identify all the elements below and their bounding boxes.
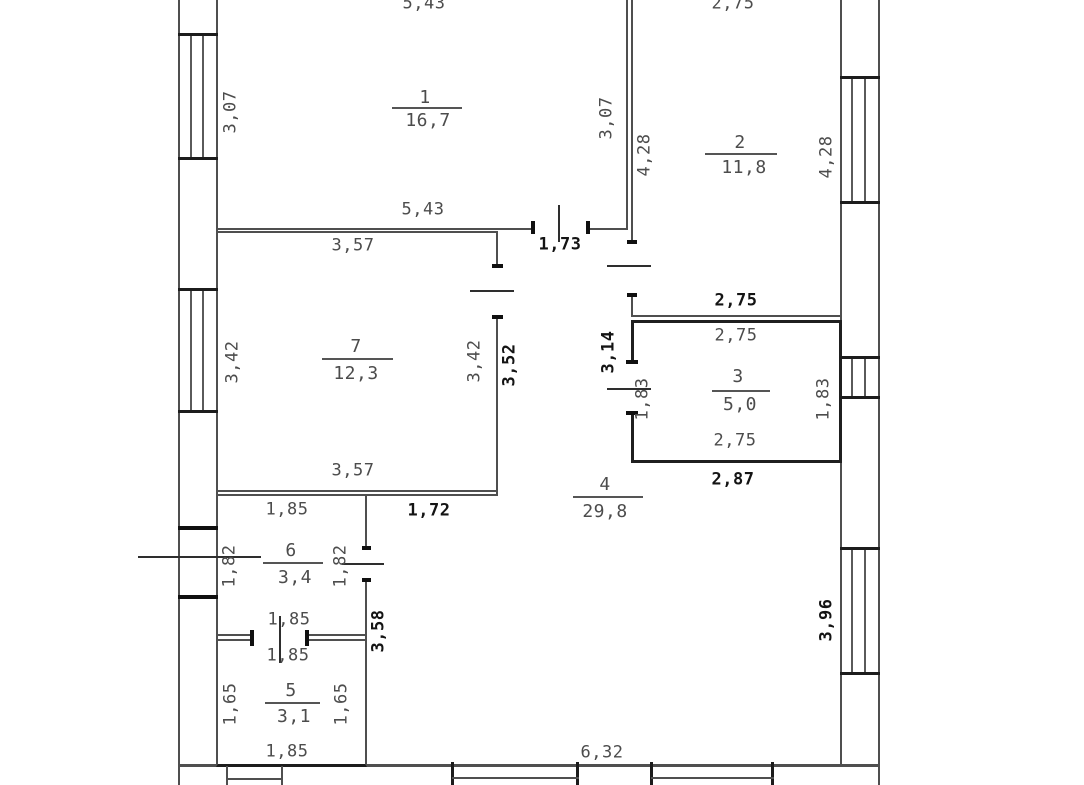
window-left-upper-glass-1 (190, 36, 192, 157)
room-4-number: 4 (599, 476, 610, 494)
window-right-lower-cap-bottom (840, 672, 880, 675)
room-1-number: 1 (419, 89, 430, 107)
window-right-upper-glass-2 (864, 79, 866, 201)
dim-hall-left-lower: 3,58 (371, 610, 388, 653)
room-1-divider (392, 107, 462, 109)
wall-right-outer (878, 0, 880, 785)
room-3-divider (712, 390, 770, 392)
dim-room2-top: 2,75 (712, 0, 755, 13)
dim-room3-left: 1,83 (635, 378, 652, 421)
dim-room7-right: 3,42 (467, 340, 484, 383)
room-6-divider (263, 562, 323, 564)
dim-room5-top: 1,85 (267, 648, 310, 665)
dim-hall-below-room3: 2,87 (712, 472, 755, 489)
wall-left-outer (178, 0, 180, 785)
room-4-area: 29,8 (582, 503, 627, 521)
room-2-number: 2 (734, 134, 745, 152)
window-bottom-1-line (452, 777, 579, 779)
door-room7-jamb-bottom (492, 315, 503, 319)
window-right-lower-glass-2 (864, 550, 866, 672)
dim-room1-right: 3,07 (599, 97, 616, 140)
dim-room1-bottom: 5,43 (402, 202, 445, 219)
window-right-upper-cap-bottom (840, 201, 880, 204)
door-room7-opening (493, 267, 501, 318)
dim-hall-bottom: 6,32 (581, 745, 624, 762)
room-5-number: 5 (285, 682, 296, 700)
dim-room1-left: 3,07 (223, 91, 240, 134)
door-room7-jamb-top (492, 264, 503, 268)
window-right-upper-cap-top (840, 76, 880, 79)
door-room6-hall-jamb-top (362, 546, 371, 550)
door-room7-leaf (470, 290, 514, 292)
window-left-upper-cap-top (178, 33, 218, 36)
room-6-number: 6 (285, 542, 296, 560)
room-4-divider (573, 496, 643, 498)
door-room6-room5-jamb-left (250, 630, 254, 646)
dim-room6-left: 1,82 (222, 545, 239, 588)
window-left-lower-glass-2 (202, 291, 204, 410)
wall-hall-step-join (496, 490, 498, 496)
dim-room7-left: 3,42 (225, 341, 242, 384)
room-3-area: 5,0 (723, 396, 757, 414)
window-bottom-2-line (651, 777, 774, 779)
room-5-area: 3,1 (277, 708, 311, 726)
room-2-divider (705, 153, 777, 155)
door-room1-opening (532, 222, 589, 234)
dim-room3-bottom: 2,75 (714, 433, 757, 450)
dim-hall-corridor: 3,14 (601, 331, 618, 374)
dim-hall-left-mid: 1,72 (408, 503, 451, 520)
dim-room5-left: 1,65 (223, 683, 240, 726)
room-6-area: 3,4 (278, 569, 312, 587)
door-room6-hall-jamb-bottom (362, 578, 371, 582)
window-left-lower-cap-top (178, 288, 218, 291)
window-right-lower-cap-top (840, 547, 880, 550)
room-2-area: 11,8 (721, 159, 766, 177)
dim-room1-top: 5,43 (403, 0, 446, 13)
opening-room5-bottom-left-jamb (226, 766, 228, 785)
door-room2-leaf (607, 265, 651, 267)
door-room3-jamb-top (626, 360, 638, 364)
window-right-upper-glass-1 (851, 79, 853, 201)
door-room2-opening (628, 243, 636, 295)
window-room3-glass-2 (864, 359, 866, 396)
dim-room5-bottom: 1,85 (266, 744, 309, 761)
room-1-area: 16,7 (405, 112, 450, 130)
window-bottom-1-left-jamb (451, 762, 454, 785)
dim-hall-right: 3,96 (819, 599, 836, 642)
door-entrance-jamb-top (178, 526, 218, 530)
opening-room5-bottom-right-jamb (281, 766, 283, 785)
dim-room6-bottom: 1,85 (268, 612, 311, 629)
dim-room2-bottom: 2,75 (715, 293, 758, 310)
window-room3-cap-bottom (840, 396, 880, 399)
floor-plan: 1 16,7 5,43 5,43 3,07 3,07 2 11,8 2,75 2… (0, 0, 1084, 785)
door-entrance-leaf (138, 556, 261, 558)
room-3-number: 3 (732, 368, 743, 386)
door-room2-jamb-bottom (627, 293, 637, 297)
dim-room7-top: 3,57 (332, 238, 375, 255)
window-left-lower-glass-1 (190, 291, 192, 410)
window-room3-glass-1 (851, 359, 853, 396)
room-7-outline (216, 231, 498, 492)
door-room6-room5-jamb-right (305, 630, 309, 646)
dim-room3-top: 2,75 (715, 328, 758, 345)
room-7-divider (322, 358, 393, 360)
window-bottom-1-right-jamb (576, 762, 579, 785)
dim-hall-door-top: 1,73 (539, 237, 582, 254)
room-7-number: 7 (350, 338, 361, 356)
dim-room2-left: 4,28 (637, 134, 654, 177)
dim-hall-left-upper: 3,52 (502, 344, 519, 387)
room-7-area: 12,3 (333, 365, 378, 383)
door-room1-jamb-right (586, 221, 590, 234)
dim-room7-bottom: 3,57 (332, 463, 375, 480)
wall-hall-step (360, 494, 498, 496)
window-left-upper-glass-2 (202, 36, 204, 157)
dim-room6-top: 1,85 (266, 502, 309, 519)
door-room2-jamb-top (627, 240, 637, 244)
window-left-lower-cap-bottom (178, 410, 218, 413)
window-room3-cap-top (840, 356, 880, 359)
window-bottom-2-right-jamb (771, 762, 774, 785)
dim-room5-right: 1,65 (334, 683, 351, 726)
dim-room6-right: 1,82 (333, 545, 350, 588)
room-5-divider (265, 702, 320, 704)
window-left-upper-cap-bottom (178, 157, 218, 160)
door-entrance-jamb-bottom (178, 595, 218, 599)
window-right-lower-glass-1 (851, 550, 853, 672)
door-room1-jamb-left (531, 221, 535, 234)
dim-room3-right: 1,83 (816, 378, 833, 421)
dim-room2-right: 4,28 (819, 136, 836, 179)
window-bottom-2-left-jamb (650, 762, 653, 785)
opening-room5-bottom-line (226, 778, 283, 780)
